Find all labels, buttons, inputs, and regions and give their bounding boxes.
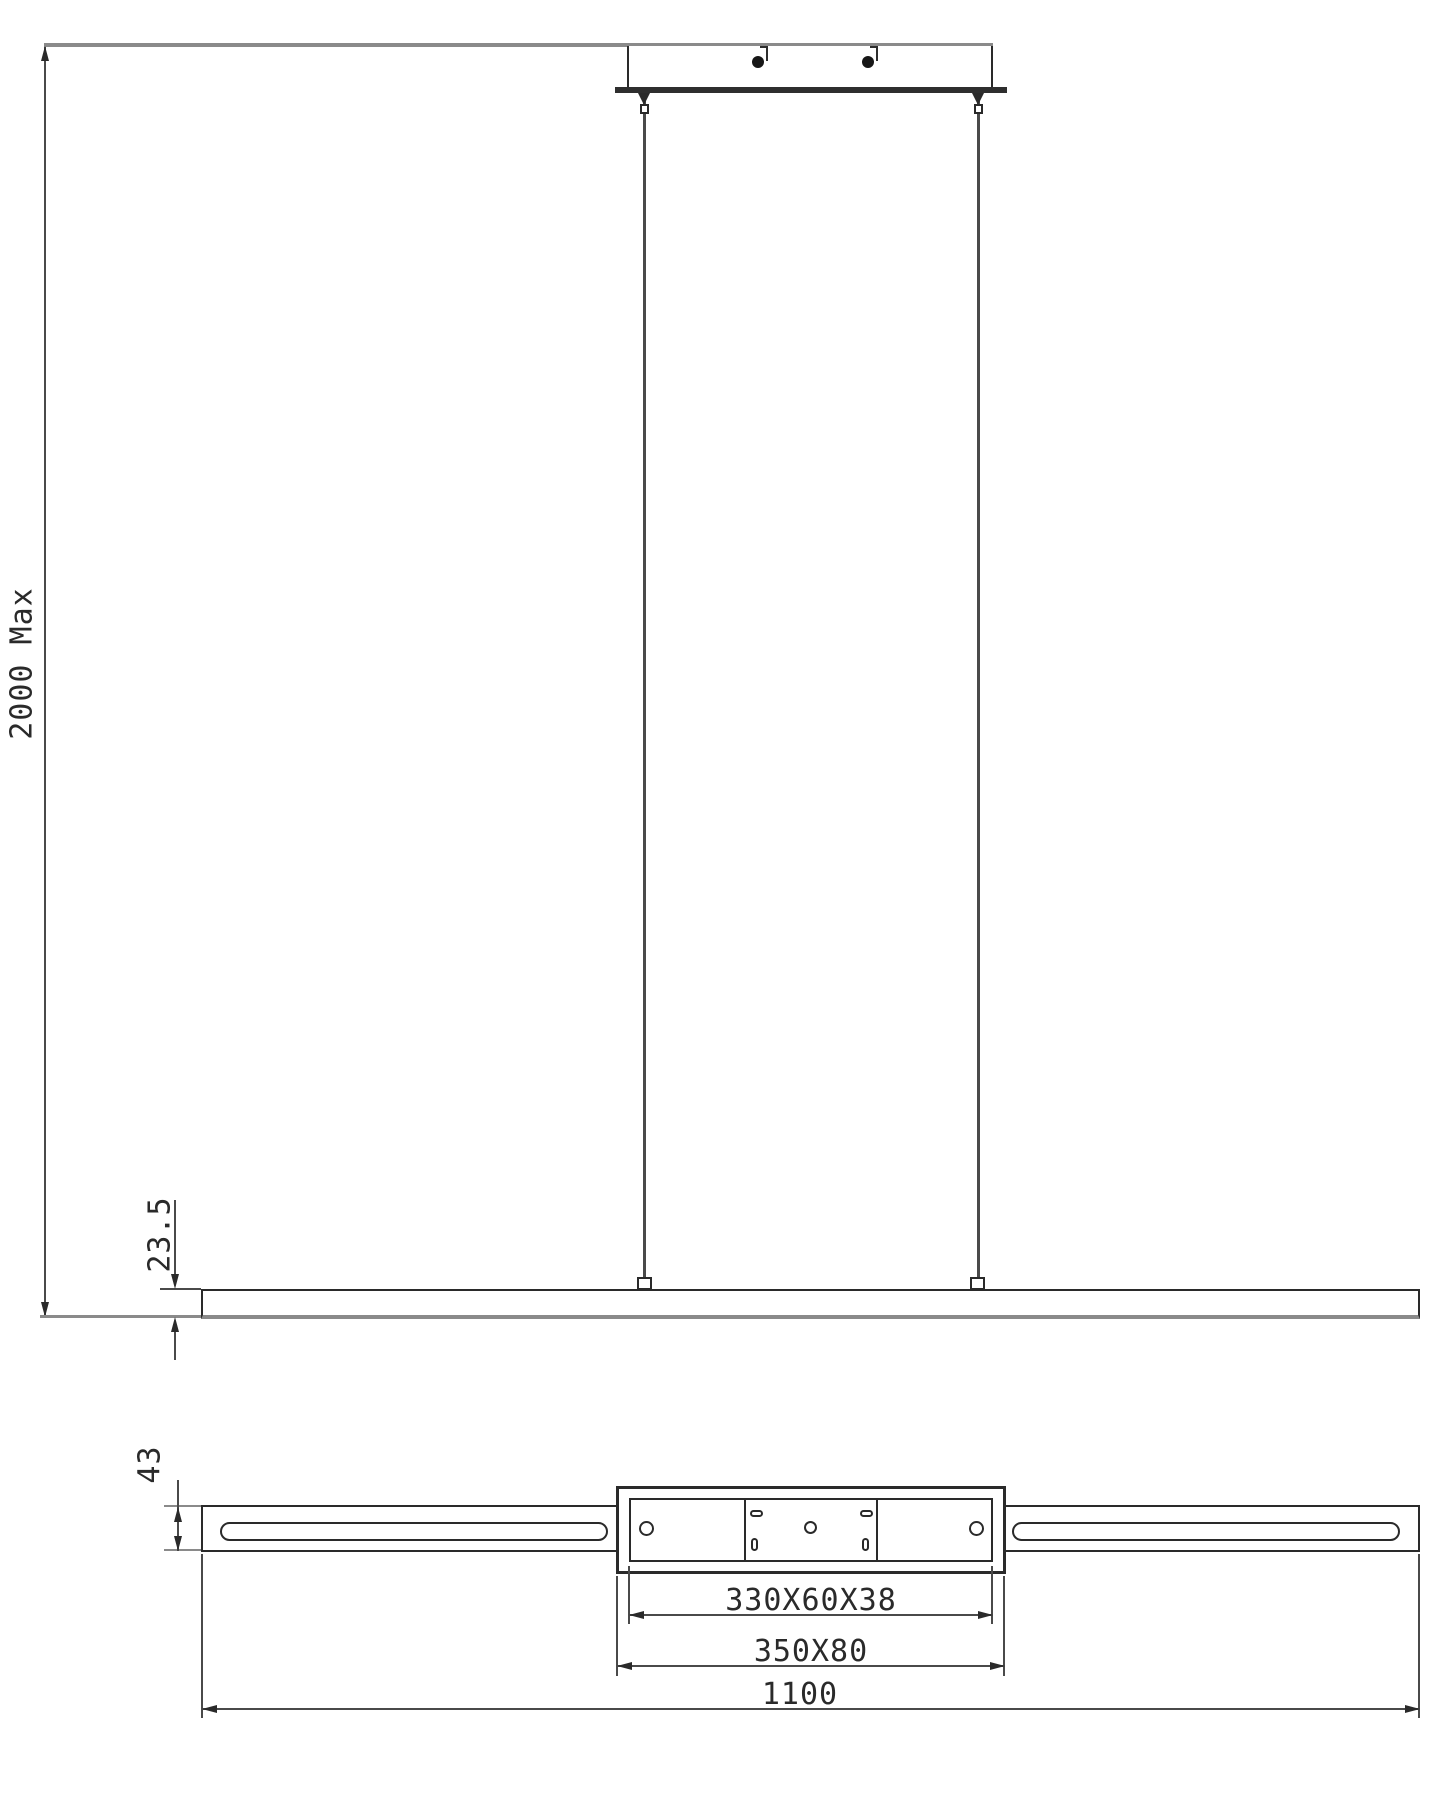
mounting-screw-right-hook-top-icon (870, 46, 878, 48)
cable-grip-left-nut (640, 104, 649, 114)
dim-line-2000 (44, 47, 46, 1316)
bracket-center-hole (804, 1521, 817, 1534)
label-max-drop: 2000 Max (5, 574, 40, 754)
extension-line-plan-bottom (164, 1549, 201, 1551)
mounting-screw-left-icon (752, 56, 764, 68)
screw-hole-right (969, 1521, 984, 1536)
bracket-slot-bottom-left (751, 1538, 758, 1551)
arrow-up-icon (171, 1317, 179, 1332)
cable-grip-right-nut (974, 104, 983, 114)
canopy-plate (615, 87, 1007, 93)
extension-line-1100-left (201, 1554, 203, 1718)
arrow-left-icon (629, 1611, 644, 1619)
mounting-screw-left-hook-top-icon (760, 46, 768, 48)
arrow-right-icon (990, 1662, 1005, 1670)
arrow-left-icon (202, 1705, 217, 1713)
dim-line-23-5-lower (174, 1332, 176, 1360)
arrow-left-icon (617, 1662, 632, 1670)
label-canopy-size: 350X80 (661, 1634, 961, 1669)
mounting-slot-left (220, 1522, 608, 1541)
extension-line-350-left (616, 1576, 618, 1676)
bracket-slot-top-right (860, 1510, 873, 1517)
light-bar-side-view (201, 1289, 1420, 1319)
label-bar-depth: 43 (133, 1435, 168, 1495)
arrow-up-icon (174, 1507, 182, 1522)
mounting-screw-left-hook-icon (766, 46, 768, 61)
label-driver-box-size: 330X60X38 (661, 1583, 961, 1618)
arrow-up-icon (41, 46, 49, 61)
mounting-slot-right (1012, 1522, 1400, 1541)
extension-line-bar-top (160, 1288, 201, 1290)
arrow-right-icon (978, 1611, 993, 1619)
suspension-cable-left (643, 93, 646, 1278)
screw-hole-left (639, 1521, 654, 1536)
mounting-screw-right-icon (862, 56, 874, 68)
bracket-slot-bottom-right (862, 1538, 869, 1551)
suspension-cable-right (977, 93, 980, 1278)
technical-drawing: 2000 Max 23.5 43 (0, 0, 1445, 1798)
arrow-down-icon (174, 1536, 182, 1551)
bracket-slot-top-left (750, 1510, 763, 1517)
mounting-screw-right-hook-icon (876, 46, 878, 61)
label-bar-thickness: 23.5 (143, 1185, 178, 1285)
extension-line-1100-right (1418, 1554, 1420, 1718)
arrow-right-icon (1405, 1705, 1420, 1713)
extension-line-350-right (1003, 1576, 1005, 1676)
canopy-box (627, 46, 993, 90)
label-bar-length: 1100 (650, 1677, 950, 1712)
extension-line-plan-top (164, 1505, 201, 1507)
